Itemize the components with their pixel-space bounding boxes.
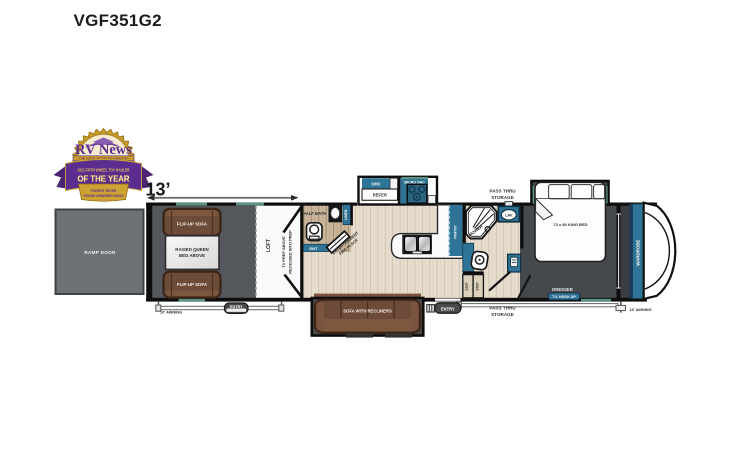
svg-text:SOFA WITH RECLINERS: SOFA WITH RECLINERS [343, 309, 392, 314]
svg-text:PASS THRU: PASS THRU [489, 306, 516, 311]
svg-text:ENT: ENT [310, 246, 319, 251]
svg-text:T.V. HOOK UP: T.V. HOOK UP [552, 295, 576, 299]
svg-text:RECESSED INTO PREP: RECESSED INTO PREP [288, 230, 293, 274]
svg-text:72 x 80 KING BED: 72 x 80 KING BED [553, 222, 587, 227]
svg-text:LAV: LAV [505, 213, 513, 217]
svg-text:PASS THRU: PASS THRU [489, 189, 516, 194]
svg-text:BED ABOVE: BED ABOVE [179, 253, 205, 258]
svg-text:13’: 13’ [146, 180, 171, 200]
svg-text:FOREST RIVER: FOREST RIVER [91, 189, 117, 193]
svg-text:DRESSER: DRESSER [552, 287, 574, 292]
svg-text:ROGUE ARMORED 351G2: ROGUE ARMORED 351G2 [84, 194, 124, 198]
svg-text:16’ AWNING: 16’ AWNING [630, 307, 652, 312]
svg-text:10’ AWNING: 10’ AWNING [160, 309, 182, 314]
svg-text:TV PREP ABOVE: TV PREP ABOVE [281, 236, 286, 268]
svg-text:RAISED QUEEN: RAISED QUEEN [175, 247, 208, 252]
svg-text:HALF BATH: HALF BATH [303, 211, 327, 216]
svg-text:OHC: OHC [371, 182, 380, 187]
svg-text:STORAGE: STORAGE [491, 195, 514, 200]
svg-text:OF THE YEAR: OF THE YEAR [78, 174, 130, 184]
svg-text:LINEN: LINEN [344, 209, 348, 220]
svg-text:VGF351G2: VGF351G2 [74, 11, 162, 30]
svg-text:FLIP-UP SOFA: FLIP-UP SOFA [177, 282, 208, 287]
svg-text:REFER: REFER [373, 193, 387, 198]
svg-text:STEP: STEP [465, 281, 469, 290]
svg-text:LOFT: LOFT [266, 239, 272, 252]
svg-text:RAMP DOOR: RAMP DOOR [84, 250, 116, 255]
svg-text:FLIP-UP SOFA: FLIP-UP SOFA [177, 222, 208, 227]
svg-text:2021 FIFTH WHEEL TOY HAULER: 2021 FIFTH WHEEL TOY HAULER [78, 168, 131, 173]
svg-text:STEP: STEP [476, 281, 480, 290]
svg-text:ENTRY: ENTRY [230, 305, 243, 309]
svg-text:ENTRY: ENTRY [441, 306, 455, 311]
svg-text:WARDROBE: WARDROBE [636, 240, 641, 266]
svg-text:STORAGE: STORAGE [491, 312, 514, 317]
svg-text:PANTRY: PANTRY [453, 224, 457, 238]
